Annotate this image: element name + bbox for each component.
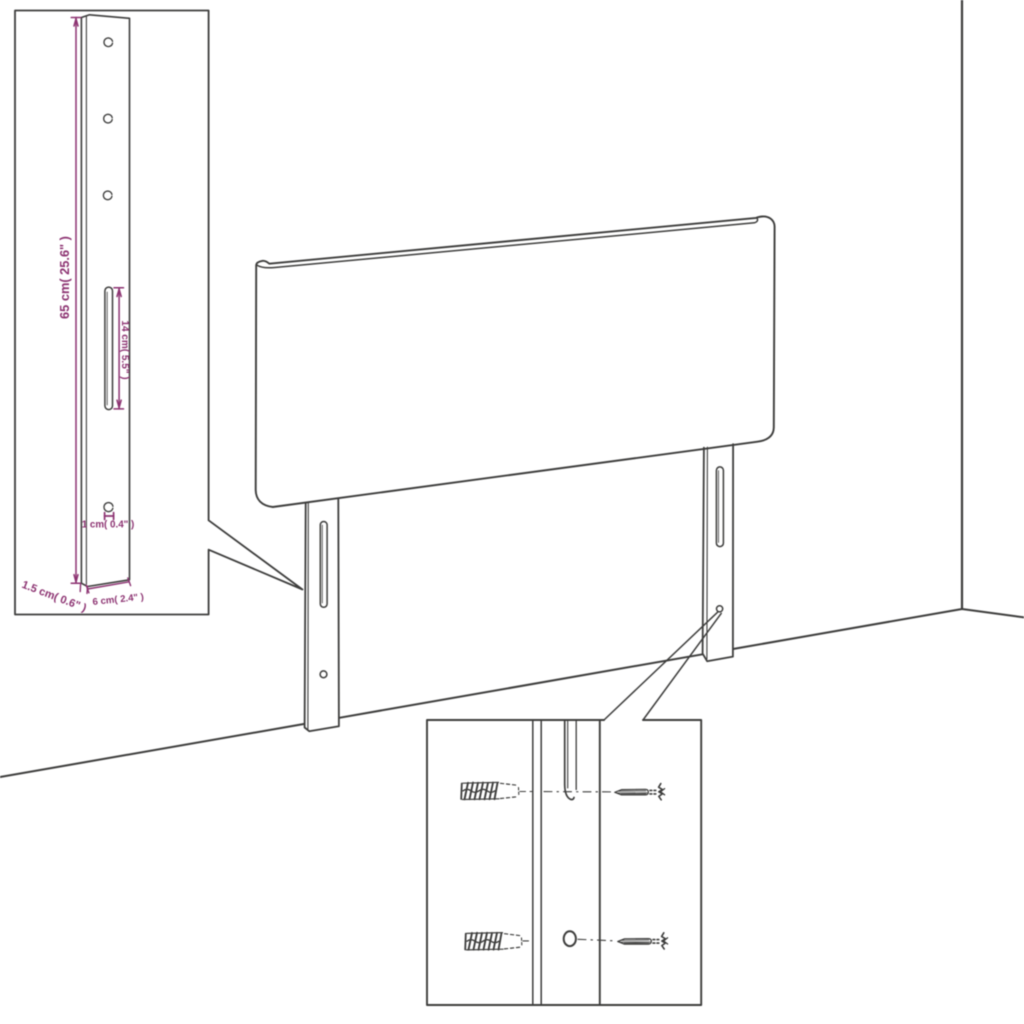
svg-text:14 cm( 5.5" ): 14 cm( 5.5" ) xyxy=(119,320,130,379)
svg-text:1 cm( 0.4" ): 1 cm( 0.4" ) xyxy=(82,520,135,531)
svg-text:65 cm( 25.6" ): 65 cm( 25.6" ) xyxy=(57,236,72,319)
